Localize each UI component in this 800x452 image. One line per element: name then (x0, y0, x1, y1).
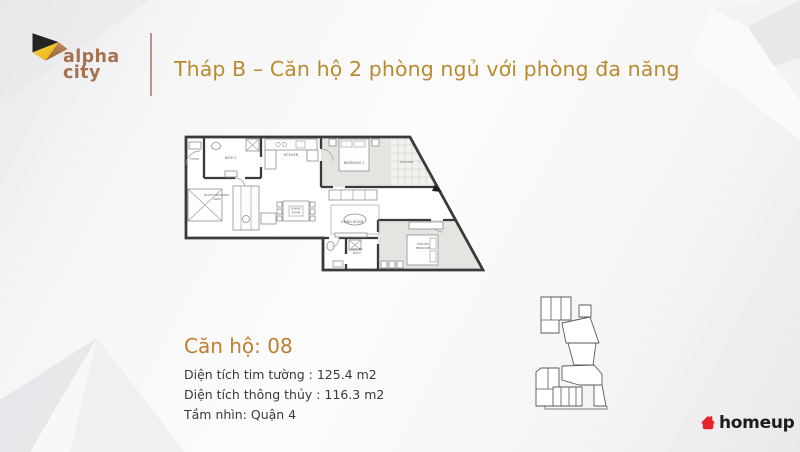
room-label-multifunctional-2: AREA (213, 197, 221, 201)
room-label-multifunctional-1: MULTIFUNCTIONAL (204, 193, 230, 197)
room-label-bath1: BATH 1 (225, 156, 237, 160)
alpha-city-logo-text: alpha city (63, 49, 120, 81)
unit-net-area: Diện tích thông thủy : 116.3 m2 (184, 385, 384, 405)
header-divider (150, 33, 152, 96)
homeup-logo: homeup (699, 413, 795, 433)
room-label-master-bath-1: MASTER (351, 247, 362, 251)
room-label-dining-1: DINING (291, 207, 301, 211)
key-plan (529, 289, 639, 413)
room-label-foyer: FOYER (190, 157, 199, 161)
unit-info: Căn hộ: 08 Diện tích tim tường : 125.4 m… (184, 334, 384, 425)
room-label-dining-2: ROOM (292, 211, 301, 215)
logo-line2: city (63, 65, 120, 81)
slide: alpha city Tháp B – Căn hộ 2 phòng ngủ v… (0, 0, 800, 452)
room-label-master-bedroom-2: BEDROOM (416, 246, 430, 250)
room-label-balcony: BALCONY (400, 160, 413, 164)
homeup-icon (699, 414, 717, 432)
room-label-kitchen: KITCHEN (284, 153, 299, 157)
room-label-master-bedroom-1: MASTER (417, 242, 428, 246)
unit-view: Tầm nhìn: Quận 4 (184, 405, 384, 425)
key-plan-highlighted-unit (562, 365, 602, 385)
floor-plan: FOYER BATH 1 KITCHEN BEDROOM 1 BALCONY M… (183, 129, 485, 279)
key-plan-outline (536, 297, 607, 409)
page-title: Tháp B – Căn hộ 2 phòng ngủ với phòng đa… (174, 57, 774, 81)
room-label-living: LIVING ROOM (341, 220, 364, 224)
homeup-wordmark: homeup (719, 413, 795, 433)
room-label-master-bath-2: BATH (353, 251, 360, 255)
unit-number: Căn hộ: 08 (184, 334, 384, 358)
unit-gross-area: Diện tích tim tường : 125.4 m2 (184, 365, 384, 385)
room-label-bedroom1: BEDROOM 1 (344, 161, 364, 165)
